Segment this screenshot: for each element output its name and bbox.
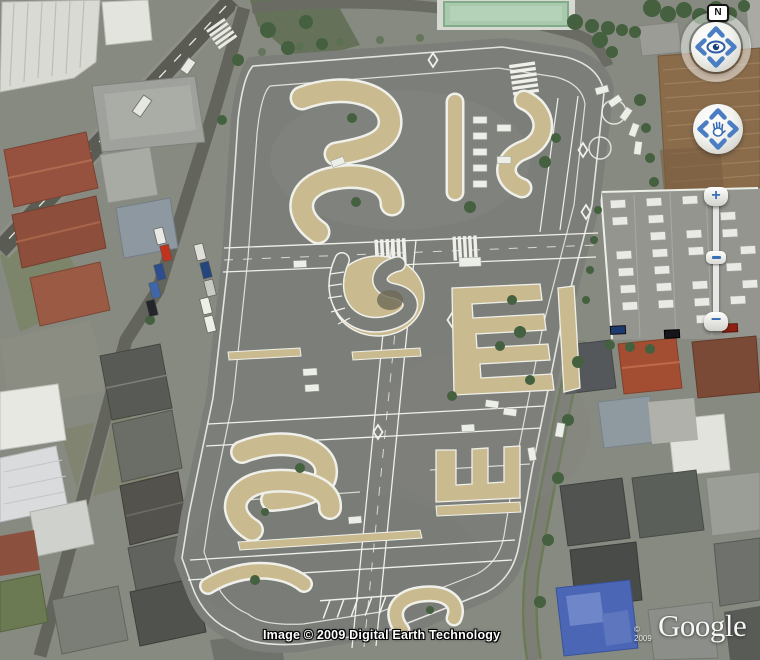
pan-left-arrow-icon[interactable] — [700, 123, 707, 136]
look-left-arrow-icon[interactable] — [698, 41, 705, 54]
look-up-arrow-icon[interactable] — [710, 29, 723, 36]
look-joystick — [691, 22, 741, 72]
pan-up-arrow-icon[interactable] — [712, 111, 725, 118]
look-right-arrow-icon[interactable] — [728, 41, 735, 54]
look-down-arrow-icon[interactable] — [710, 59, 723, 66]
google-logo-text: Google — [658, 608, 746, 644]
google-earth-window: N + − Image © 200 — [0, 0, 760, 660]
eye-icon[interactable] — [708, 42, 725, 53]
satellite-map[interactable] — [0, 0, 760, 660]
pan-right-arrow-icon[interactable] — [730, 123, 737, 136]
zoom-out-button[interactable]: − — [704, 312, 728, 331]
zoom-in-button[interactable]: + — [704, 187, 728, 206]
hand-icon[interactable] — [714, 123, 726, 137]
imagery-attribution: Image © 2009 Digital Earth Technology — [263, 628, 500, 642]
logo-copyright: © 2009 — [634, 625, 652, 643]
pan-down-arrow-icon[interactable] — [712, 141, 725, 148]
north-button[interactable]: N — [707, 4, 729, 22]
zoom-slider-thumb[interactable] — [706, 251, 726, 264]
pan-joystick — [693, 104, 743, 154]
